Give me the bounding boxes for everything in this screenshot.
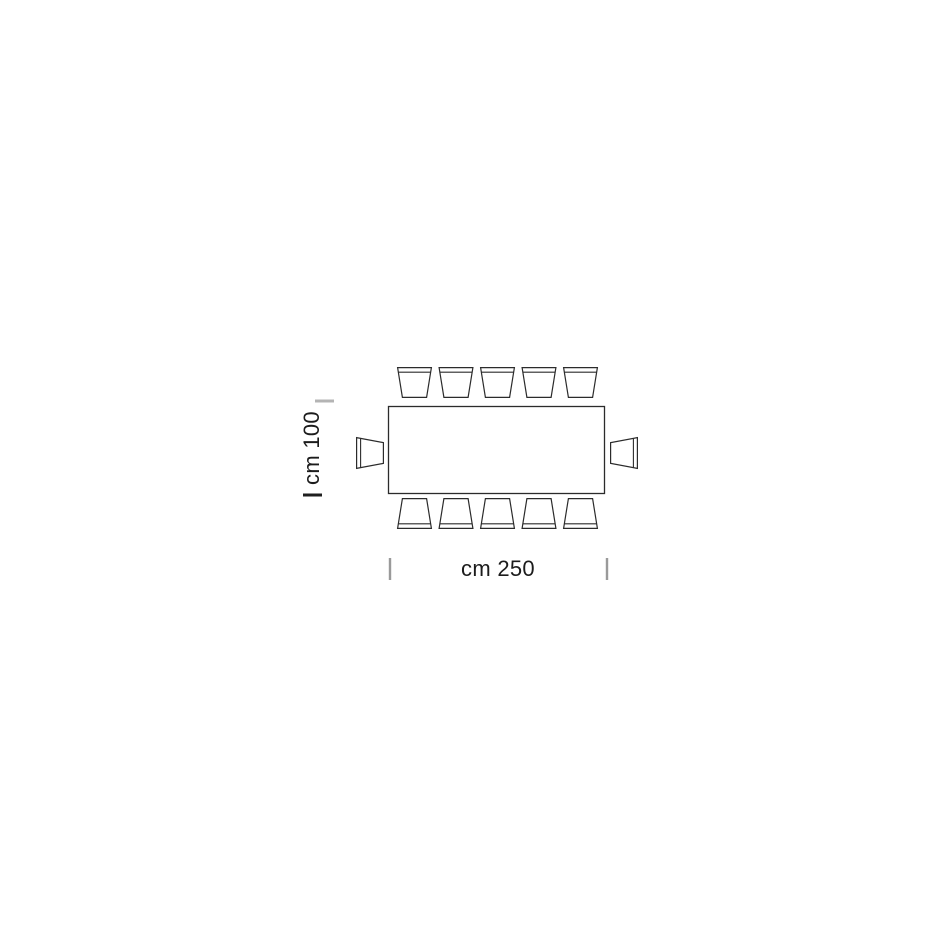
chair-bottom-5 xyxy=(564,499,598,529)
chair-bottom-3 xyxy=(481,499,515,529)
chair-top-3 xyxy=(481,368,515,398)
chair-left xyxy=(357,438,384,469)
chair-right xyxy=(611,438,638,469)
table-plan-diagram xyxy=(0,0,950,950)
chair-top-2 xyxy=(439,368,473,398)
chair-bottom-1 xyxy=(398,499,432,529)
page-canvas: cm 100 cm 250 xyxy=(0,0,950,950)
chair-top-4 xyxy=(522,368,556,398)
width-dimension-label: cm 250 xyxy=(418,557,578,583)
chair-bottom-2 xyxy=(439,499,473,529)
depth-dimension-label: cm 100 xyxy=(300,388,324,508)
table-top xyxy=(389,407,605,494)
chair-top-5 xyxy=(564,368,598,398)
chair-bottom-4 xyxy=(522,499,556,529)
chair-top-1 xyxy=(398,368,432,398)
